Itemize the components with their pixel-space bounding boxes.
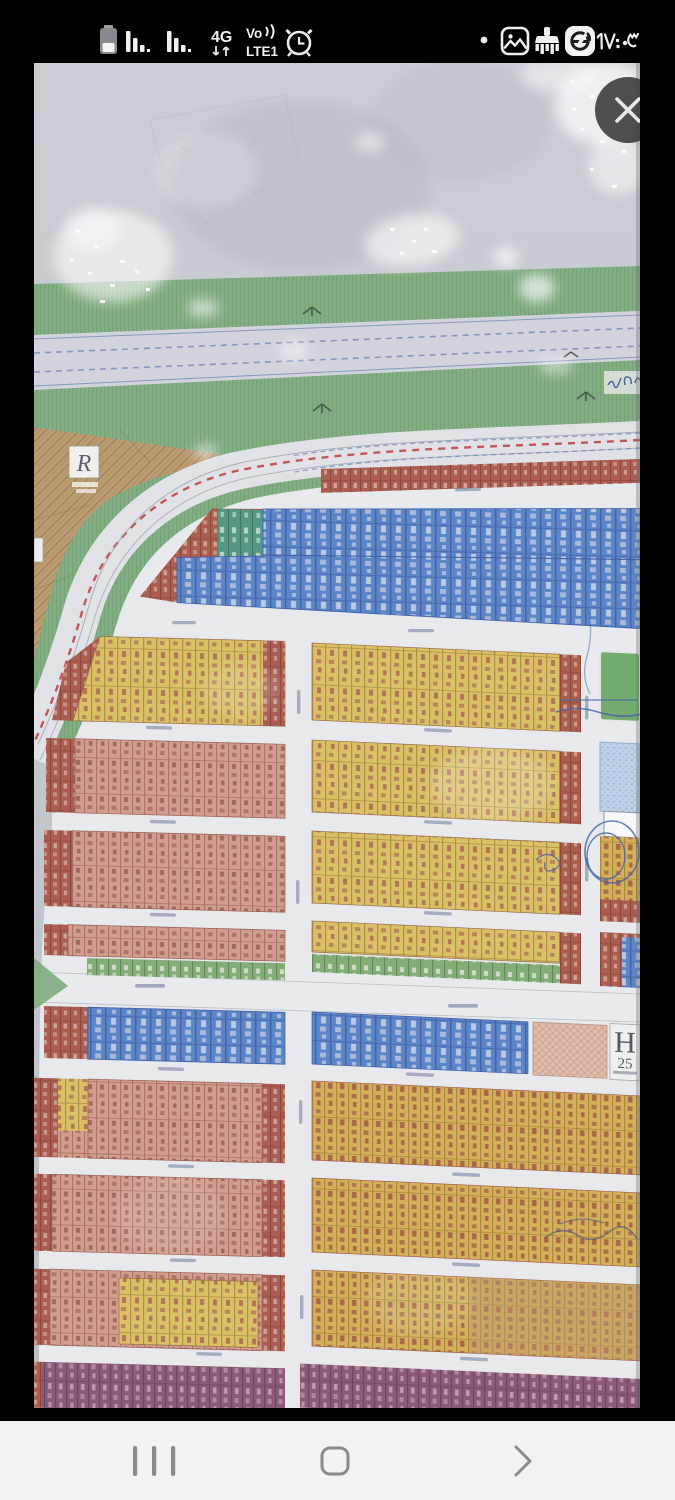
svg-text:LTE1: LTE1: [246, 44, 278, 59]
svg-text:Vo: Vo: [246, 26, 262, 41]
svg-text:4G: 4G: [211, 29, 232, 46]
